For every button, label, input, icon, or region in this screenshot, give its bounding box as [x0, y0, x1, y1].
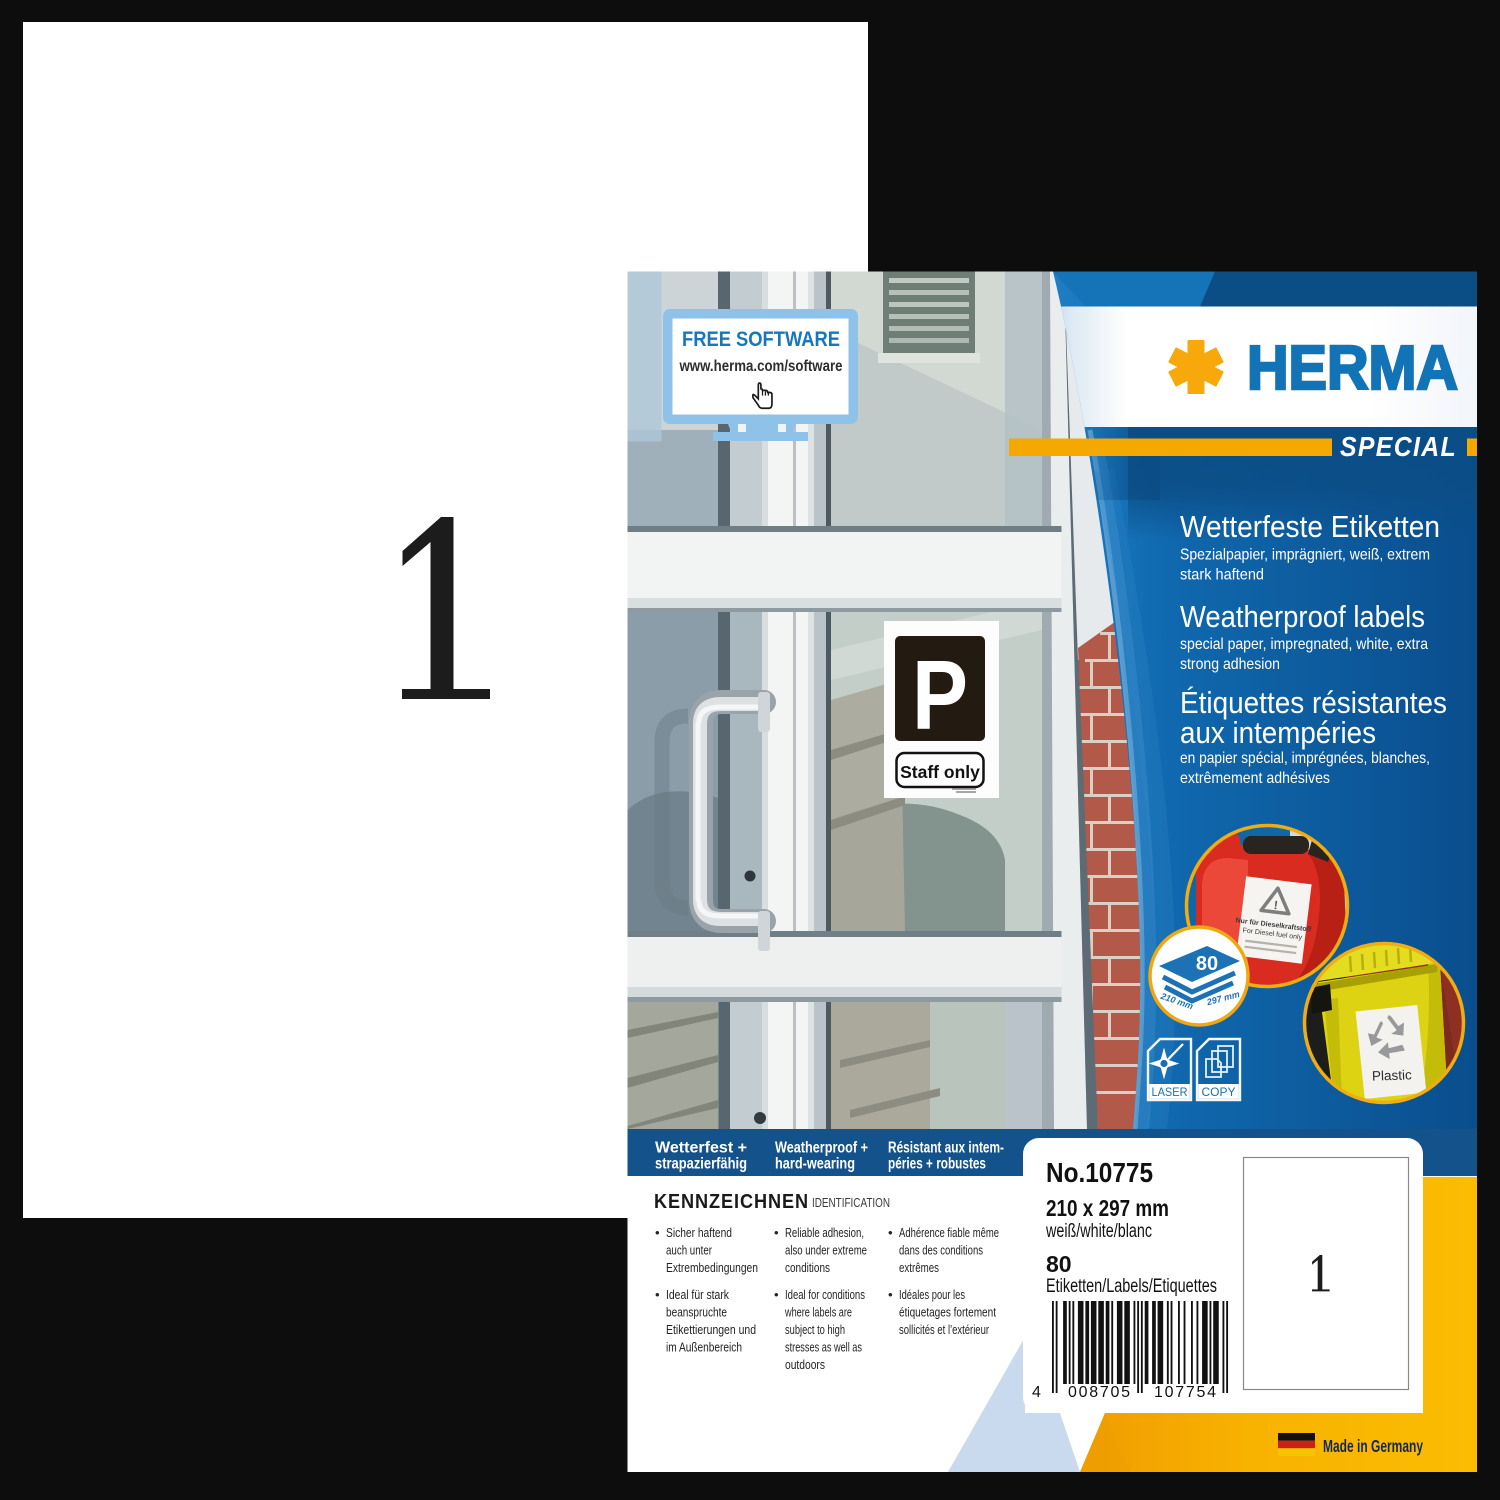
svg-text:extrêmement adhésives: extrêmement adhésives: [1180, 770, 1330, 787]
svg-text:80: 80: [1196, 953, 1218, 975]
svg-text:extrêmes: extrêmes: [899, 1260, 939, 1275]
svg-text:im Außenbereich: im Außenbereich: [666, 1340, 742, 1355]
svg-text:No.10775: No.10775: [1046, 1157, 1153, 1188]
svg-text:where labels are: where labels are: [784, 1305, 852, 1320]
svg-text:dans des conditions: dans des conditions: [899, 1243, 983, 1258]
svg-text:•: •: [655, 1287, 660, 1302]
svg-text:•: •: [774, 1287, 779, 1302]
svg-text:www.herma.com/software: www.herma.com/software: [679, 358, 843, 375]
svg-text:4: 4: [1032, 1384, 1041, 1401]
svg-text:KENNZEICHNEN: KENNZEICHNEN: [654, 1191, 809, 1213]
svg-text:P: P: [912, 640, 968, 750]
svg-text:•: •: [655, 1225, 660, 1240]
svg-text:en papier spécial, imprégnées,: en papier spécial, imprégnées, blanches,: [1180, 750, 1430, 767]
svg-text:SPECIAL: SPECIAL: [1340, 431, 1457, 462]
svg-text:also under extreme: also under extreme: [785, 1243, 867, 1258]
svg-text:beanspruchte: beanspruchte: [666, 1305, 727, 1320]
svg-text:strong adhesion: strong adhesion: [1180, 656, 1280, 673]
svg-text:Plastic: Plastic: [1372, 1067, 1413, 1083]
svg-text:conditions: conditions: [785, 1260, 830, 1275]
svg-text:aux intempéries: aux intempéries: [1180, 715, 1376, 750]
svg-text:Extrembedingungen: Extrembedingungen: [666, 1260, 758, 1275]
svg-text:210 x 297 mm: 210 x 297 mm: [1046, 1195, 1169, 1221]
svg-text:hard-wearing: hard-wearing: [775, 1156, 855, 1173]
svg-text:80: 80: [1046, 1251, 1072, 1277]
svg-text:Reliable adhesion,: Reliable adhesion,: [785, 1225, 864, 1240]
svg-text:outdoors: outdoors: [785, 1357, 825, 1372]
svg-text:LASER: LASER: [1152, 1085, 1188, 1099]
svg-text:strapazierfähig: strapazierfähig: [655, 1156, 747, 1173]
svg-text:Weatherproof labels: Weatherproof labels: [1180, 599, 1425, 634]
svg-text:weiß/white/blanc: weiß/white/blanc: [1045, 1221, 1152, 1242]
svg-text:Etikettierungen und: Etikettierungen und: [666, 1322, 756, 1337]
svg-text:stark haftend: stark haftend: [1180, 567, 1264, 584]
svg-text:COPY: COPY: [1202, 1085, 1236, 1099]
svg-text:étiquetages fortement: étiquetages fortement: [899, 1305, 996, 1320]
svg-text:Spezialpapier, imprägniert, we: Spezialpapier, imprägniert, weiß, extrem: [1180, 547, 1430, 564]
svg-text:HERMA: HERMA: [1247, 334, 1458, 403]
svg-text:Weatherproof +: Weatherproof +: [775, 1140, 868, 1157]
svg-text:Wetterfeste Etiketten: Wetterfeste Etiketten: [1180, 509, 1440, 544]
svg-text:stresses as well as: stresses as well as: [785, 1340, 862, 1355]
svg-text:•: •: [888, 1225, 893, 1240]
svg-text:Wetterfest +: Wetterfest +: [655, 1140, 747, 1157]
svg-text:IDENTIFICATION: IDENTIFICATION: [812, 1196, 890, 1210]
svg-text:FREE SOFTWARE: FREE SOFTWARE: [682, 327, 840, 351]
svg-text:Staff only: Staff only: [900, 762, 980, 782]
svg-text:Ideal for conditions: Ideal for conditions: [785, 1287, 865, 1302]
svg-text:special paper, impregnated, wh: special paper, impregnated, white, extra: [1180, 636, 1428, 653]
svg-text:auch unter: auch unter: [666, 1243, 712, 1258]
svg-text:Ideal für stark: Ideal für stark: [666, 1287, 729, 1302]
svg-text:Résistant aux intem-: Résistant aux intem-: [888, 1140, 1004, 1157]
svg-text:péries + robustes: péries + robustes: [888, 1156, 986, 1173]
svg-text:Idéales pour les: Idéales pour les: [899, 1287, 965, 1302]
svg-text:•: •: [774, 1225, 779, 1240]
svg-text:subject to high: subject to high: [785, 1322, 845, 1337]
svg-text:Sicher haftend: Sicher haftend: [666, 1225, 732, 1240]
svg-text:sollicités et l’extérieur: sollicités et l’extérieur: [899, 1322, 989, 1337]
svg-text:Made in Germany: Made in Germany: [1323, 1436, 1423, 1456]
svg-text:Etiketten/Labels/Etiquettes: Etiketten/Labels/Etiquettes: [1046, 1276, 1217, 1297]
svg-text:•: •: [888, 1287, 893, 1302]
svg-text:Adhérence fiable même: Adhérence fiable même: [899, 1225, 999, 1240]
